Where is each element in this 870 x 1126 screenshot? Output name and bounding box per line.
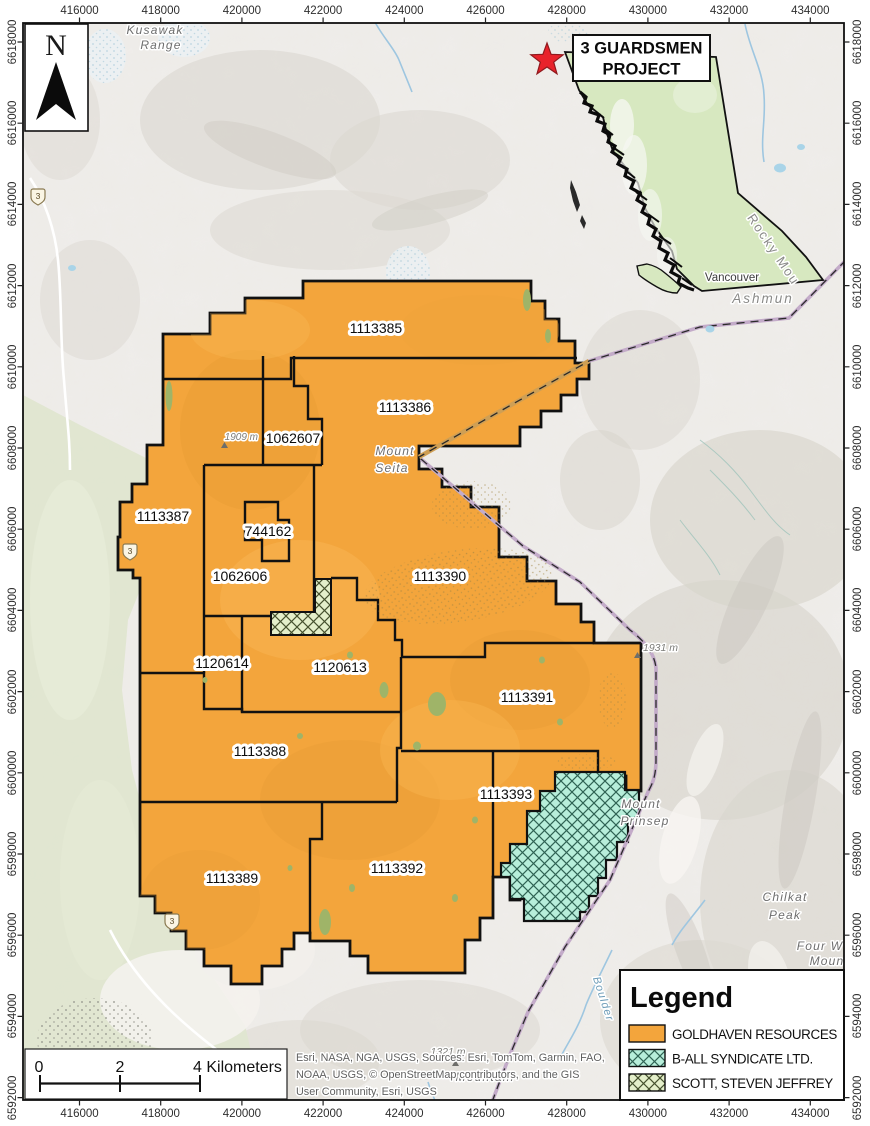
svg-text:B-ALL SYNDICATE LTD.: B-ALL SYNDICATE LTD. <box>672 1052 813 1067</box>
svg-text:6614000: 6614000 <box>852 182 864 227</box>
svg-text:6618000: 6618000 <box>7 20 19 65</box>
svg-text:6598000: 6598000 <box>852 832 864 877</box>
svg-text:430000: 430000 <box>629 5 667 17</box>
svg-text:Ashmun: Ashmun <box>731 291 794 306</box>
svg-text:428000: 428000 <box>548 1108 586 1120</box>
svg-text:426000: 426000 <box>466 1108 504 1120</box>
svg-text:User Community, Esri, USGS: User Community, Esri, USGS <box>296 1086 437 1098</box>
svg-text:6606000: 6606000 <box>852 507 864 552</box>
svg-text:1113385: 1113385 <box>350 320 403 336</box>
svg-text:434000: 434000 <box>791 5 829 17</box>
svg-text:3: 3 <box>128 546 133 556</box>
svg-text:424000: 424000 <box>385 5 423 17</box>
svg-text:Legend: Legend <box>630 982 733 1014</box>
svg-text:Range: Range <box>140 38 181 52</box>
svg-text:416000: 416000 <box>60 5 98 17</box>
svg-text:418000: 418000 <box>142 1108 180 1120</box>
svg-text:GOLDHAVEN RESOURCES: GOLDHAVEN RESOURCES <box>672 1027 837 1042</box>
svg-text:1113389: 1113389 <box>206 870 259 886</box>
svg-text:0: 0 <box>35 1059 44 1076</box>
svg-text:6604000: 6604000 <box>852 588 864 633</box>
svg-text:418000: 418000 <box>142 5 180 17</box>
svg-text:6616000: 6616000 <box>852 101 864 146</box>
svg-text:N: N <box>45 29 67 62</box>
svg-text:1909 m: 1909 m <box>225 432 258 443</box>
svg-text:6614000: 6614000 <box>7 182 19 227</box>
svg-text:6616000: 6616000 <box>7 101 19 146</box>
svg-text:6594000: 6594000 <box>852 994 864 1039</box>
svg-text:Chilkat: Chilkat <box>762 890 807 904</box>
svg-text:1113391: 1113391 <box>501 689 554 705</box>
svg-text:6604000: 6604000 <box>7 588 19 633</box>
svg-text:1931 m: 1931 m <box>643 642 678 654</box>
svg-text:Kusawak: Kusawak <box>126 23 183 37</box>
svg-text:6600000: 6600000 <box>7 751 19 796</box>
svg-text:1120614: 1120614 <box>195 655 249 671</box>
svg-text:Prinsep: Prinsep <box>620 814 669 828</box>
svg-text:Four W: Four W <box>797 939 844 953</box>
svg-text:432000: 432000 <box>710 5 748 17</box>
svg-text:422000: 422000 <box>304 1108 342 1120</box>
svg-text:Mount: Mount <box>621 797 660 811</box>
svg-text:434000: 434000 <box>791 1108 829 1120</box>
svg-text:Vancouver: Vancouver <box>705 272 759 284</box>
svg-text:NOAA, USGS, © OpenStreetMap co: NOAA, USGS, © OpenStreetMap contributors… <box>296 1069 579 1081</box>
svg-text:Mount: Mount <box>375 444 414 458</box>
svg-text:6612000: 6612000 <box>7 264 19 309</box>
svg-text:PROJECT: PROJECT <box>603 61 681 79</box>
svg-text:6610000: 6610000 <box>852 345 864 390</box>
svg-text:3: 3 <box>170 916 175 926</box>
svg-text:6598000: 6598000 <box>7 832 19 877</box>
svg-text:432000: 432000 <box>710 1108 748 1120</box>
svg-text:1113390: 1113390 <box>414 568 467 584</box>
svg-text:6610000: 6610000 <box>7 345 19 390</box>
svg-text:420000: 420000 <box>223 5 261 17</box>
svg-text:4 Kilometers: 4 Kilometers <box>193 1059 282 1076</box>
svg-text:SCOTT, STEVEN JEFFREY: SCOTT, STEVEN JEFFREY <box>672 1076 833 1091</box>
svg-text:744162: 744162 <box>245 523 292 539</box>
svg-text:6592000: 6592000 <box>7 1076 19 1121</box>
svg-text:426000: 426000 <box>466 5 504 17</box>
svg-text:Esri, NASA, NGA, USGS, Sources: Esri, NASA, NGA, USGS, Sources: Esri, To… <box>296 1052 605 1064</box>
svg-text:428000: 428000 <box>548 5 586 17</box>
svg-text:1113387: 1113387 <box>137 508 190 524</box>
svg-text:6596000: 6596000 <box>7 913 19 958</box>
svg-text:6612000: 6612000 <box>852 264 864 309</box>
svg-text:1120613: 1120613 <box>313 659 367 675</box>
svg-text:416000: 416000 <box>60 1108 98 1120</box>
svg-text:1113388: 1113388 <box>234 743 287 759</box>
svg-text:6608000: 6608000 <box>7 426 19 471</box>
svg-text:Seita: Seita <box>375 461 408 475</box>
svg-text:1113392: 1113392 <box>371 860 424 876</box>
svg-text:6618000: 6618000 <box>852 20 864 65</box>
svg-text:420000: 420000 <box>223 1108 261 1120</box>
svg-text:6600000: 6600000 <box>852 751 864 796</box>
svg-text:6596000: 6596000 <box>852 913 864 958</box>
svg-text:3: 3 <box>36 191 41 201</box>
svg-text:Peak: Peak <box>769 908 801 922</box>
svg-text:6602000: 6602000 <box>7 670 19 715</box>
svg-text:2: 2 <box>116 1059 125 1076</box>
svg-text:6594000: 6594000 <box>7 994 19 1039</box>
svg-text:1113393: 1113393 <box>480 786 533 802</box>
svg-text:6592000: 6592000 <box>852 1076 864 1121</box>
svg-text:1062606: 1062606 <box>213 568 268 584</box>
svg-text:6602000: 6602000 <box>852 670 864 715</box>
svg-text:3 GUARDSMEN: 3 GUARDSMEN <box>581 40 703 58</box>
svg-text:422000: 422000 <box>304 5 342 17</box>
svg-text:424000: 424000 <box>385 1108 423 1120</box>
svg-text:6606000: 6606000 <box>7 507 19 552</box>
svg-text:1062607: 1062607 <box>266 430 321 446</box>
svg-text:430000: 430000 <box>629 1108 667 1120</box>
svg-text:6608000: 6608000 <box>852 426 864 471</box>
svg-text:Moun: Moun <box>810 954 845 968</box>
svg-text:1113386: 1113386 <box>379 399 432 415</box>
